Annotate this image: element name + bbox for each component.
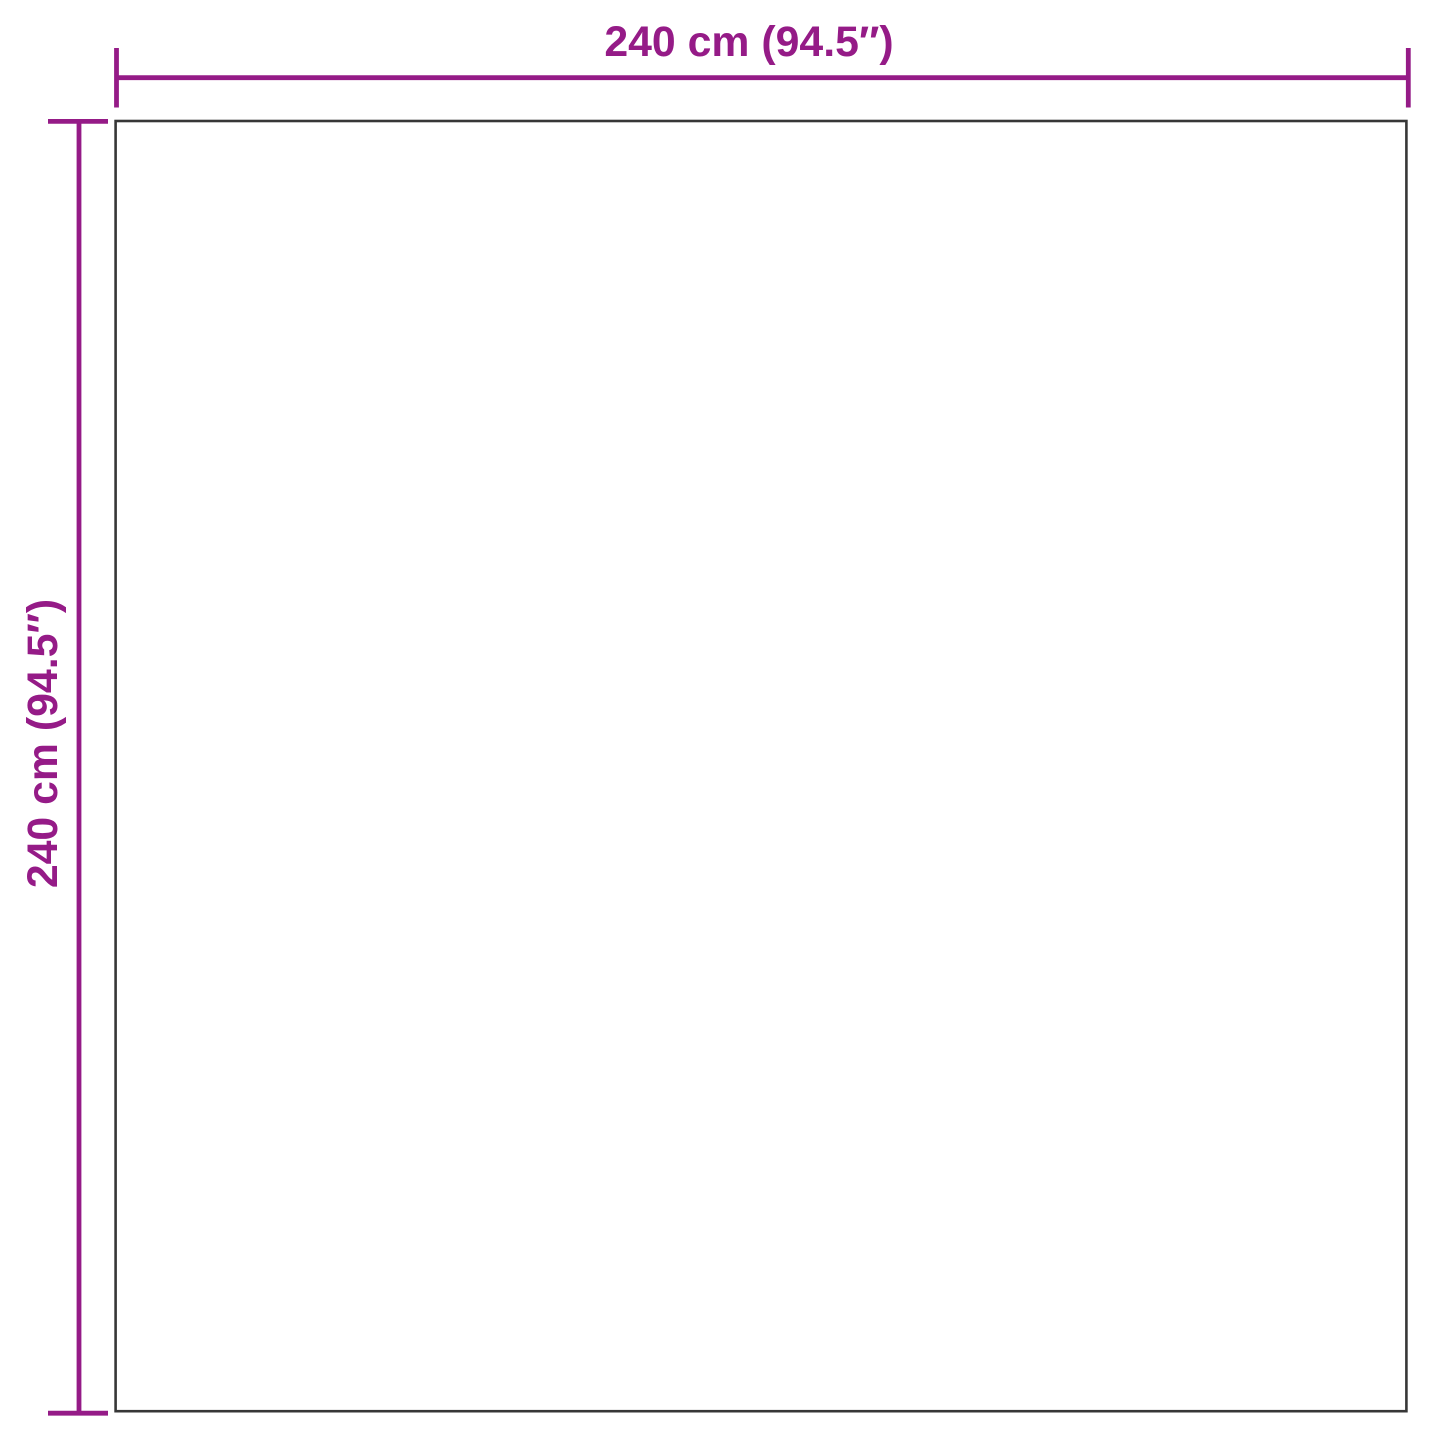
svg-text:240 cm (94.5″): 240 cm (94.5″) [604,18,893,66]
svg-text:240 cm (94.5″): 240 cm (94.5″) [19,599,67,888]
